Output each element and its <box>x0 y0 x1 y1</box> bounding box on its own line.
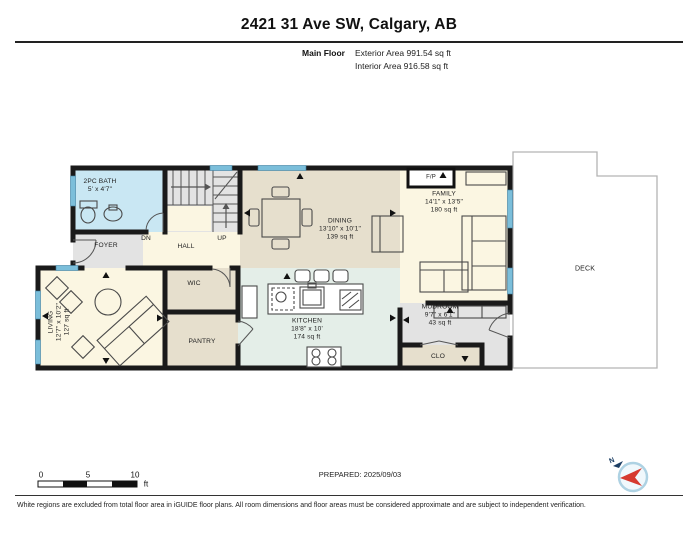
stair-down-label: DN <box>141 235 151 243</box>
wic-label: WIC <box>187 280 200 288</box>
compass-icon <box>613 461 647 491</box>
hall-label: HALL <box>177 243 194 251</box>
living-label: LIVING 12'7" x 10'2" 127 sq ft <box>48 303 73 341</box>
deck-label: DECK <box>575 266 595 275</box>
deck-outline <box>513 152 657 368</box>
footer-divider <box>15 495 683 496</box>
bath-label: 2PC BATH 5' x 4'7" <box>84 178 117 194</box>
prepared-date: PREPARED: 2025/09/03 <box>319 470 401 479</box>
closet-label: CLO <box>431 353 445 361</box>
kitchen-label: KITCHEN 18'8" x 10' 174 sq ft <box>291 318 323 343</box>
scale-bar <box>38 481 137 487</box>
foyer-label: FOYER <box>94 242 117 250</box>
dining-label: DINING 13'10" x 10'1" 139 sq ft <box>319 218 361 243</box>
scale-tick-5: 5 <box>86 471 90 480</box>
disclaimer-text: White regions are excluded from total fl… <box>17 502 685 509</box>
floorplan-page: 2421 31 Ave SW, Calgary, AB Main Floor E… <box>0 0 698 540</box>
pantry-label: PANTRY <box>188 338 215 346</box>
scale-unit: ft <box>144 480 148 489</box>
scale-tick-0: 0 <box>39 471 43 480</box>
scale-tick-10: 10 <box>131 471 140 480</box>
family-label: FAMILY 14'1" x 13'5" 180 sq ft <box>425 191 463 216</box>
mudroom-label: MUDROOM 9'7" x 6'1" 43 sq ft <box>422 304 459 329</box>
stair-up-label: UP <box>217 235 226 243</box>
fireplace-label: F/P <box>426 174 436 182</box>
